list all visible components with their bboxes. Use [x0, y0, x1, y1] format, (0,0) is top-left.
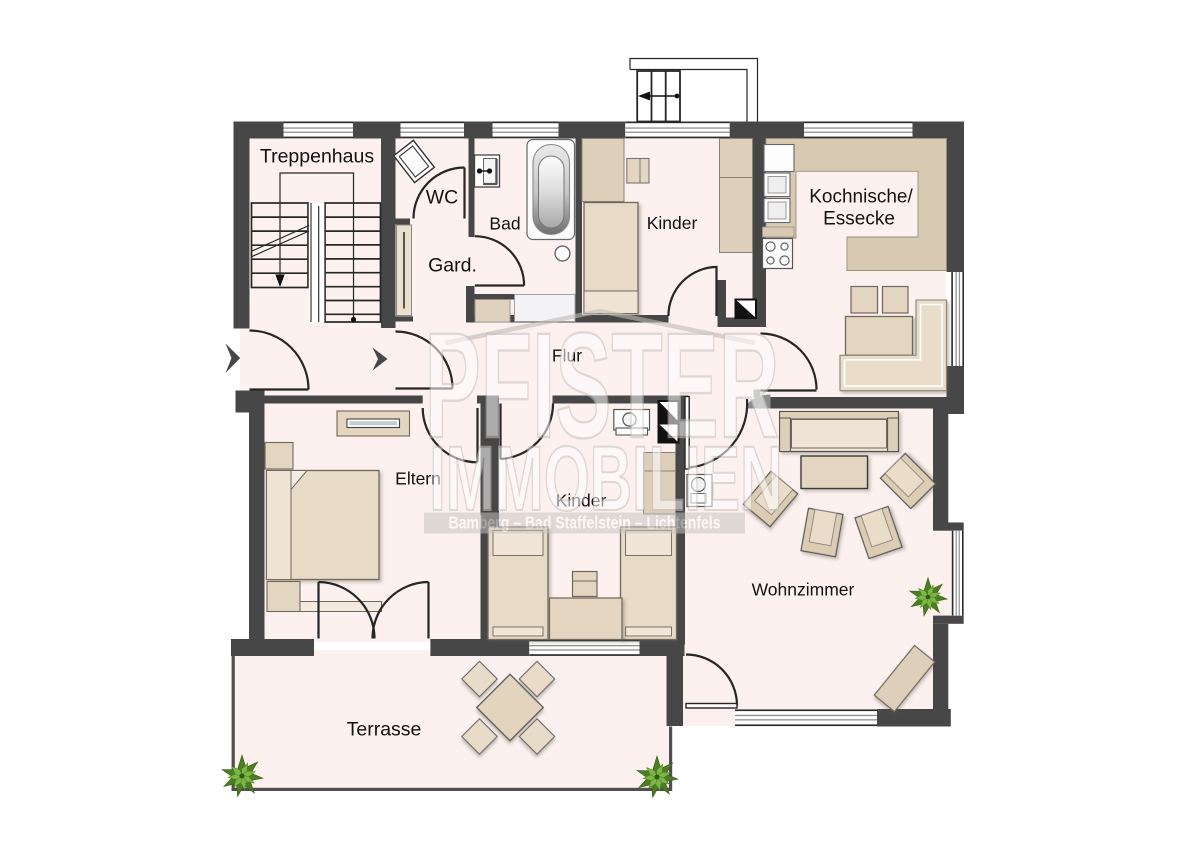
svg-text:Wohnzimmer: Wohnzimmer — [752, 580, 855, 600]
svg-text:Kochnische/: Kochnische/ — [809, 187, 913, 208]
svg-text:WC: WC — [426, 187, 459, 209]
svg-text:Bad: Bad — [489, 214, 520, 234]
svg-text:Bamberg – Bad Staffelstein – L: Bamberg – Bad Staffelstein – Lichtenfels — [448, 513, 720, 533]
svg-text:Treppenhaus: Treppenhaus — [260, 146, 374, 168]
svg-text:Essecke: Essecke — [823, 209, 895, 230]
svg-text:Kinder: Kinder — [647, 213, 698, 233]
svg-text:Gard.: Gard. — [428, 255, 477, 277]
svg-text:Terrasse: Terrasse — [347, 719, 422, 741]
